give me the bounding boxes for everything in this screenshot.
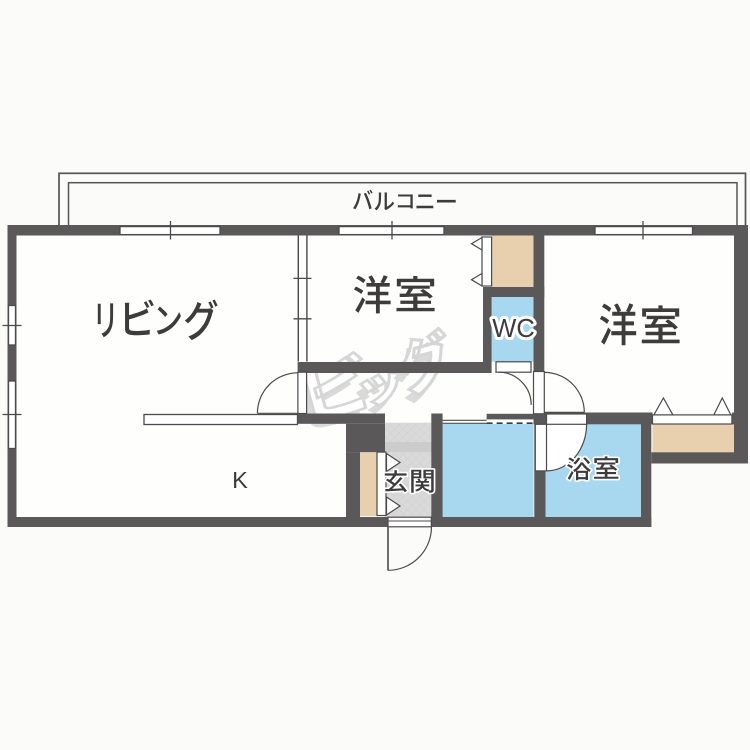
svg-text:K: K: [232, 467, 248, 493]
svg-text:WC: WC: [492, 315, 534, 343]
